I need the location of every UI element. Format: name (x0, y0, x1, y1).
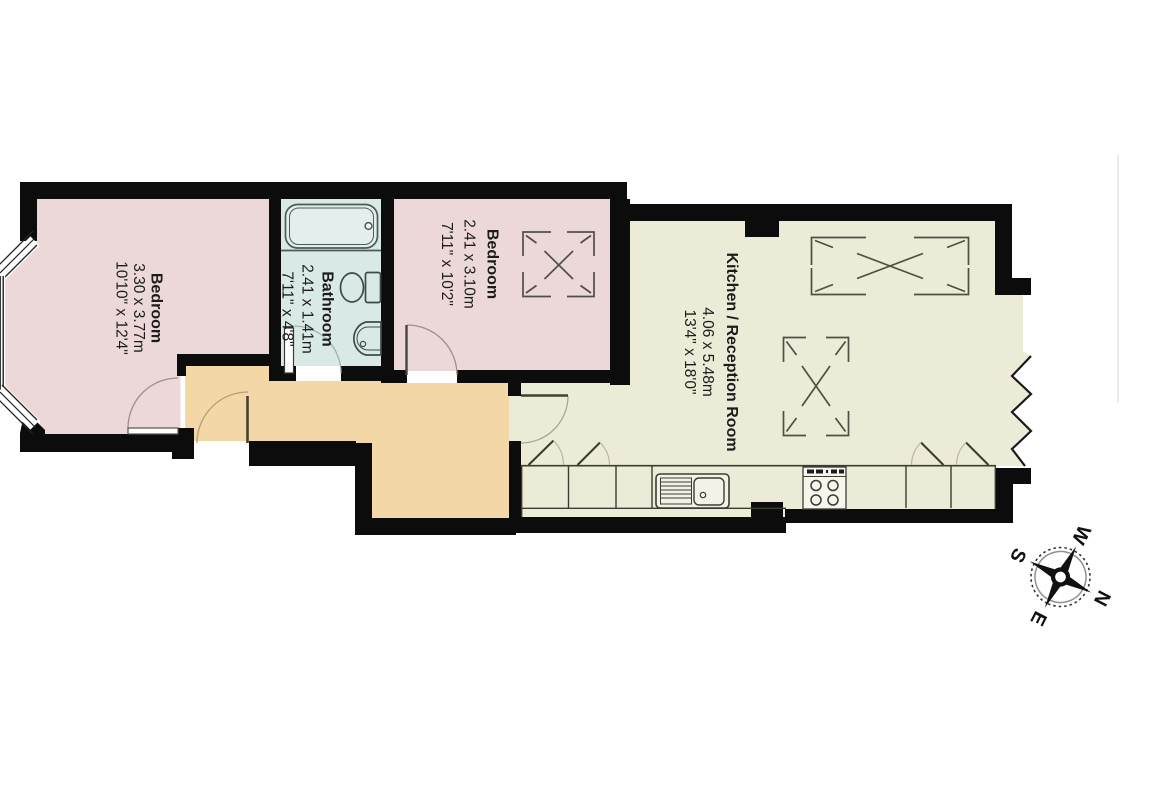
svg-text:2.41 x 1.41m: 2.41 x 1.41m (299, 264, 316, 354)
svg-text:10'10" x 12'4": 10'10" x 12'4" (113, 261, 130, 355)
svg-text:13'4" x 18'0": 13'4" x 18'0" (681, 309, 698, 394)
svg-text:3.30 x 3.77m: 3.30 x 3.77m (130, 263, 147, 353)
svg-text:Bedroom: Bedroom (484, 229, 501, 299)
svg-text:Bathroom: Bathroom (319, 271, 336, 347)
svg-text:Kitchen / Reception Room: Kitchen / Reception Room (723, 252, 740, 451)
svg-text:4.06 x 5.48m: 4.06 x 5.48m (699, 307, 716, 397)
svg-text:2.41 x 3.10m: 2.41 x 3.10m (461, 219, 478, 309)
svg-text:Bedroom: Bedroom (148, 273, 165, 343)
svg-text:7'11" x 10'2": 7'11" x 10'2" (438, 222, 455, 306)
svg-text:7'11" x 4'8": 7'11" x 4'8" (279, 271, 296, 346)
